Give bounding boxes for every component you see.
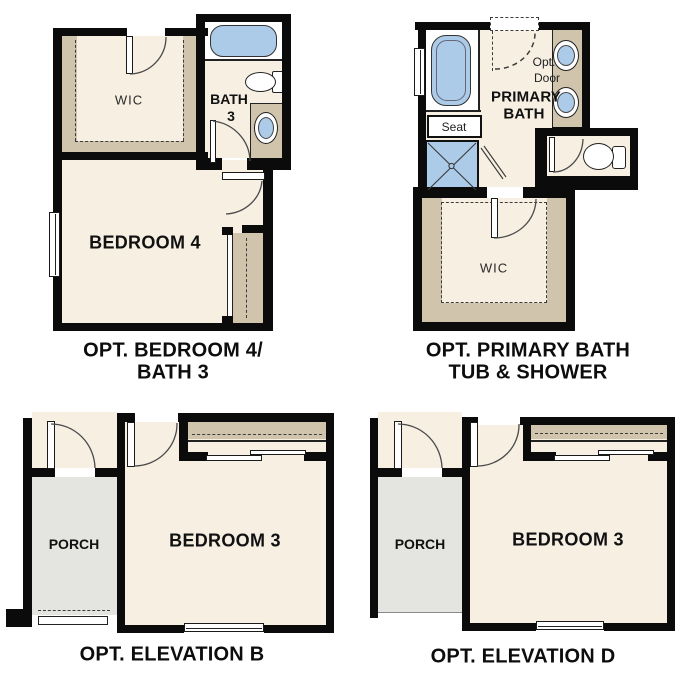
plan-caption: BATH 3 (137, 362, 209, 385)
bypass-closet-door (250, 450, 306, 456)
entry-floor (32, 412, 117, 468)
door-leaf (394, 421, 402, 469)
wall (604, 623, 675, 631)
closet-shelf (531, 425, 667, 439)
wall (53, 28, 127, 36)
primary-bath-label: PRIMARY (491, 89, 561, 106)
wic-shelf-dashed-line (75, 40, 76, 141)
bedroom4-label: BEDROOM 4 (89, 233, 201, 254)
wall (222, 316, 233, 325)
wall (415, 22, 491, 30)
bathtub-inner-line (436, 40, 466, 101)
door-leaf (470, 422, 478, 467)
tub-alcove-wall-line (426, 110, 481, 112)
wall (462, 623, 536, 631)
closet-shelf (233, 233, 263, 323)
wall (117, 413, 135, 422)
wall (264, 625, 334, 633)
closet-shelf-edge-line (531, 440, 667, 442)
closet-rod-dashed-line (246, 238, 247, 318)
wall (535, 128, 638, 136)
bypass-closet-door (206, 455, 262, 461)
wall (242, 225, 273, 233)
sink-basin (557, 45, 575, 66)
window (184, 623, 264, 632)
wall (520, 417, 675, 425)
wall (413, 187, 422, 331)
door-leaf (222, 172, 265, 180)
wall (23, 418, 32, 627)
wic-shelf-dashed-line (183, 40, 184, 141)
wall (566, 187, 575, 331)
door-leaf (210, 120, 216, 163)
entry-floor (378, 412, 462, 468)
wall (222, 227, 233, 235)
bedroom3-label: BEDROOM 3 (169, 531, 281, 552)
plan-caption: OPT. PRIMARY BATH (426, 340, 630, 363)
wall (178, 413, 334, 422)
optional-door-dashed-leaf (492, 31, 493, 71)
floorplan-sheet: WIC BATH 3 BEDROOM 4 OPT. BEDROOM 4/ BAT… (0, 0, 687, 687)
wall (582, 22, 590, 128)
wall (370, 418, 378, 618)
wall (370, 468, 402, 477)
shower (425, 140, 479, 193)
bypass-closet-door (598, 450, 654, 456)
toilet-bowl (245, 72, 276, 92)
wall (523, 452, 556, 461)
wall (247, 158, 291, 170)
wall (196, 14, 205, 170)
door-leaf (47, 421, 55, 469)
wall (462, 417, 470, 631)
closet-rod-dashed-line (535, 433, 663, 434)
window (49, 212, 60, 277)
wall (180, 452, 208, 461)
bedroom3-label: BEDROOM 3 (512, 530, 624, 551)
wall (667, 417, 675, 631)
tub-alcove-wall-line (205, 59, 282, 61)
wall (263, 170, 273, 331)
window (414, 48, 425, 96)
tub-alcove-wall-line (478, 30, 480, 112)
porch-step (38, 616, 108, 625)
opt-door-label: Door (534, 71, 560, 85)
toilet-bowl (583, 143, 614, 170)
door-leaf (126, 36, 133, 74)
door-leaf (127, 422, 135, 467)
seat-label: Seat (442, 120, 467, 134)
door-leaf (549, 137, 555, 172)
wic-label: WIC (480, 261, 508, 276)
wic-shelf-dashed-line (75, 141, 184, 142)
opt-door-label: Opt. (533, 55, 556, 69)
bypass-closet-door (554, 455, 610, 461)
window (536, 621, 604, 630)
plan-caption: OPT. ELEVATION D (431, 646, 616, 669)
bath3-label: 3 (227, 108, 235, 124)
porch-label: PORCH (395, 536, 446, 552)
plan-caption: OPT. ELEVATION B (80, 644, 265, 667)
closet-rod-dashed-line (192, 434, 322, 435)
wall (53, 152, 208, 160)
wall (282, 14, 291, 163)
closet-shelf-edge-line (188, 440, 326, 442)
sink-basin (258, 117, 274, 139)
primary-bath-label: BATH (503, 106, 544, 123)
optional-door-dashed-opening (490, 17, 539, 31)
wall (413, 187, 487, 198)
wall (23, 468, 55, 477)
wic-label: WIC (115, 93, 143, 108)
porch-label: PORCH (49, 536, 100, 552)
closet-shelf (188, 422, 326, 439)
wall (117, 413, 125, 633)
wall (53, 323, 273, 331)
plan-caption: TUB & SHOWER (448, 362, 607, 385)
wall (196, 14, 291, 22)
wall (6, 609, 32, 627)
wall (53, 28, 62, 160)
plan-caption: OPT. BEDROOM 4/ (83, 340, 263, 363)
bath3-label: BATH (210, 91, 248, 107)
wall (326, 413, 334, 633)
bathtub (210, 25, 277, 57)
wall (413, 322, 575, 331)
wall (117, 625, 184, 633)
door-leaf (491, 198, 498, 238)
porch-edge-dashed-line (38, 610, 110, 611)
wall (535, 128, 547, 190)
toilet-tank (612, 146, 626, 169)
